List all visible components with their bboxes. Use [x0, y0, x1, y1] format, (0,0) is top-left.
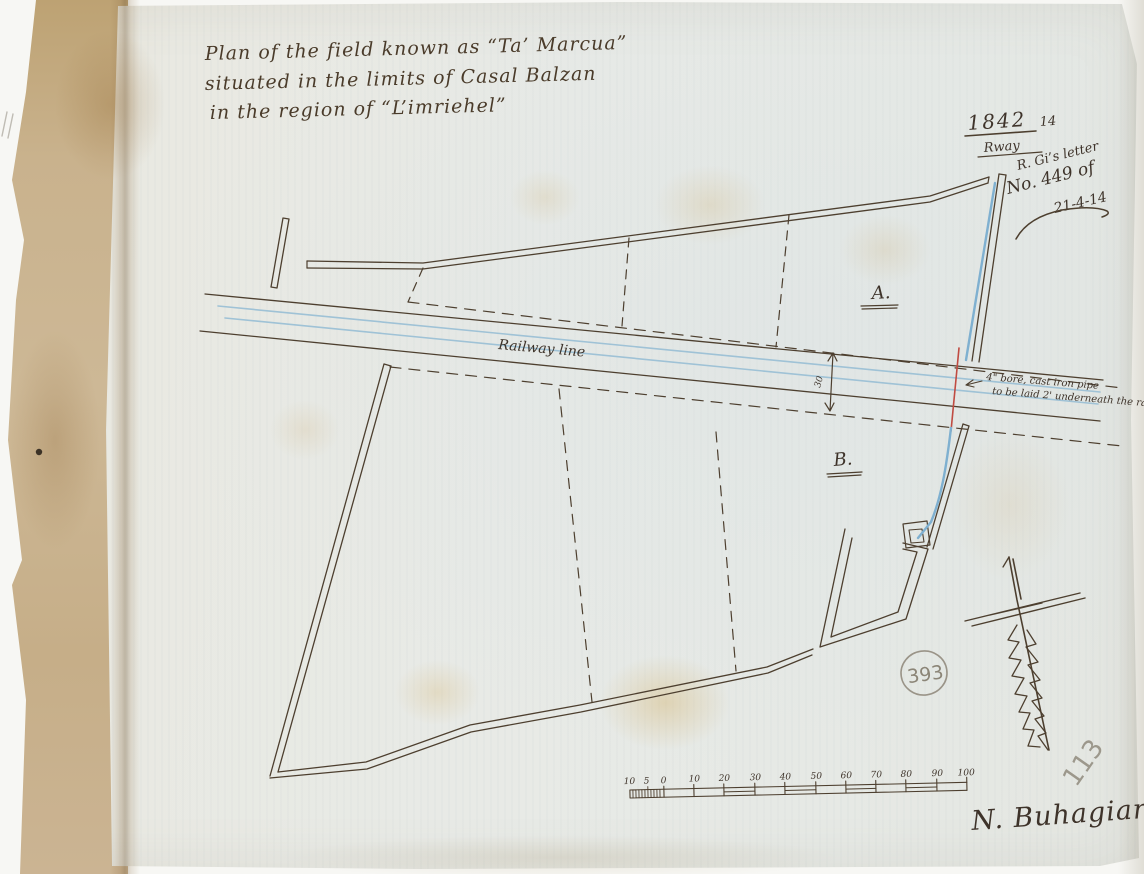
incidental-marks [2, 112, 42, 455]
field-b-west-wall-inner [278, 366, 391, 772]
pipe-annotation: 4" bore, cast iron pipe to be laid 2' un… [966, 372, 1144, 410]
reference-department: Rway [982, 138, 1021, 156]
scale-major-label: 90 [931, 769, 943, 779]
scale-major-label: 80 [900, 770, 912, 780]
field-a-north-wall-outer [307, 177, 989, 263]
scale-major-label: 50 [811, 772, 823, 782]
field-b-south-wall-upper [278, 649, 813, 772]
gauge-dimension-arrow [825, 353, 837, 411]
parcel-b-underline [827, 472, 862, 477]
scale-bar: 10 5 0 10 20 30 40 50 60 70 80 90 100 [624, 768, 976, 798]
field-a-east-wall-cap [999, 174, 1006, 175]
registry-stamp-number: 393 [906, 661, 945, 688]
scanned-plan-document: Plan of the field known as “Ta’ Marcua” … [0, 0, 1144, 874]
field-b-south-wall-lower [270, 655, 812, 778]
well-inner [909, 529, 924, 543]
field-b-west-wall-cap [384, 364, 391, 366]
scale-major-label: 100 [957, 768, 975, 778]
field-b-division-dashed-2 [716, 432, 736, 671]
scale-bar-filled-segments [724, 787, 937, 792]
surveyor-signature: N. Buhagiar [969, 794, 1144, 837]
parcel-a-underline [861, 305, 898, 309]
scale-major-label: 20 [718, 774, 731, 784]
reference-year: 1842 [967, 107, 1027, 135]
railway-line-south [200, 331, 1100, 421]
letter-note-line-3: 21-4-14 [1051, 189, 1108, 217]
sheet-number: 113 [1057, 734, 1110, 792]
title-line-3: in the region of “L’imriehel” [210, 94, 507, 124]
field-a-division-dashed-3 [776, 215, 789, 347]
field-b-boundary: B. [270, 364, 969, 778]
scale-minor-label: 10 [624, 777, 636, 787]
north-arrow-tip [1003, 557, 1009, 567]
field-b-east-wall-inner [933, 426, 969, 549]
pipe-line-field-a [966, 183, 995, 360]
scale-major-label: 70 [871, 770, 883, 780]
field-a-north-wall-inner [307, 183, 988, 269]
field-b-west-wall-outer [270, 364, 384, 776]
scale-minor-label: 0 [661, 776, 667, 786]
margin-pencil-mark [2, 112, 13, 138]
scale-major-label: 30 [750, 773, 762, 783]
scale-major-label: 40 [779, 772, 792, 782]
reference-number: 14 [1039, 114, 1057, 130]
scale-bar-hatching [633, 786, 660, 798]
parcel-b-label: B. [832, 448, 854, 471]
railway-line-north [205, 294, 1103, 380]
registry-stamp: 393 [898, 648, 950, 698]
ink-blot [36, 449, 42, 455]
title-block: Plan of the field known as “Ta’ Marcua” … [204, 32, 628, 124]
field-a-east-wall-outer [972, 174, 999, 361]
railway-corridor: Railway line 30 [200, 294, 1122, 446]
scale-major-label: 60 [841, 771, 853, 781]
plan-drawing: Plan of the field known as “Ta’ Marcua” … [0, 0, 1144, 874]
field-b-east-wall-outer [927, 424, 963, 547]
railway-water-line-2 [225, 318, 1098, 404]
field-a-north-wall-caps [307, 177, 989, 268]
north-arrow-shaft [1009, 557, 1049, 750]
title-line-1: Plan of the field known as “Ta’ Marcua” [204, 32, 628, 65]
scale-major-label: 10 [689, 774, 701, 784]
pipe-annotation-arrow [966, 380, 982, 387]
north-arrow-crossbar [965, 593, 1085, 626]
gauge-dimension: 30 [813, 353, 837, 411]
enclosure-inner-wall [831, 538, 917, 637]
detached-wall-segment [271, 218, 289, 288]
file-reference: 1842 14 Rway [965, 107, 1057, 157]
field-a-division-dashed-2 [622, 238, 629, 326]
title-line-2: situated in the limits of Casal Balzan [205, 63, 597, 95]
field-a-division-dashed-1 [408, 268, 423, 302]
field-b-east-wall-cap [963, 424, 969, 426]
scale-minor-label: 5 [644, 777, 650, 787]
field-b-division-dashed-1 [559, 389, 592, 702]
parcel-a-label: A. [869, 282, 891, 304]
north-arrow [965, 557, 1085, 750]
